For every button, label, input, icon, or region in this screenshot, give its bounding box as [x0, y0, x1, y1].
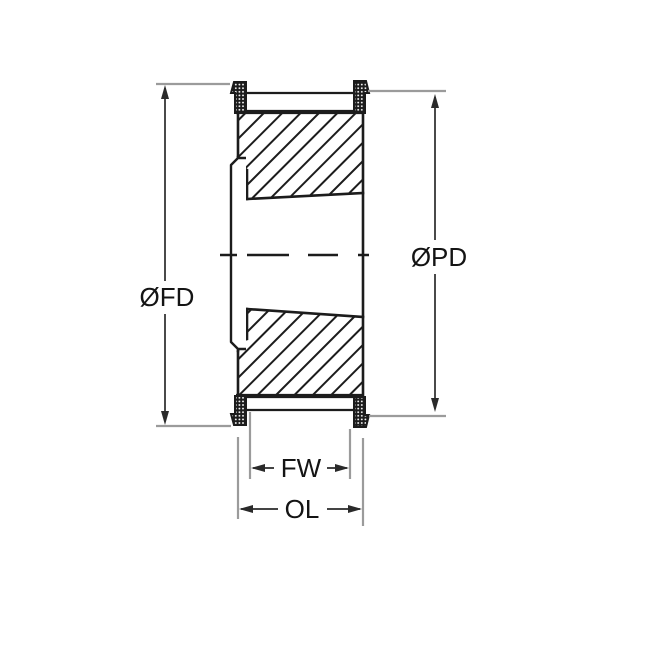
pulley-cross-section — [220, 81, 369, 427]
pd-arrow-down — [431, 398, 439, 412]
flange-top-right — [354, 81, 369, 113]
dimension-pitch-diameter: ØPD — [368, 91, 467, 416]
pitch-diameter-label: ØPD — [411, 242, 467, 272]
flange-bottom-right — [354, 397, 369, 427]
pulley-drawing: ØFD ØPD FW OL — [0, 0, 670, 670]
dimension-flange-diameter: ØFD — [140, 84, 231, 426]
pd-arrow-up — [431, 94, 439, 108]
lower-web-section — [238, 309, 363, 397]
fd-arrow-down — [161, 411, 169, 425]
face-width-label: FW — [281, 453, 322, 483]
flange-bottom-left — [231, 396, 246, 425]
overall-length-label: OL — [285, 494, 320, 524]
technical-drawing-canvas: ØFD ØPD FW OL — [0, 0, 670, 670]
ol-arrow-left — [239, 505, 253, 513]
bush-flange-outline — [231, 158, 246, 349]
dimension-face-width: FW — [250, 412, 350, 483]
upper-web-section — [238, 112, 363, 199]
ol-arrow-right — [348, 505, 362, 513]
flange-diameter-label: ØFD — [140, 282, 195, 312]
fw-arrow-right — [335, 464, 349, 472]
fw-arrow-left — [251, 464, 265, 472]
flange-top-left — [231, 82, 246, 113]
fd-arrow-up — [161, 85, 169, 99]
